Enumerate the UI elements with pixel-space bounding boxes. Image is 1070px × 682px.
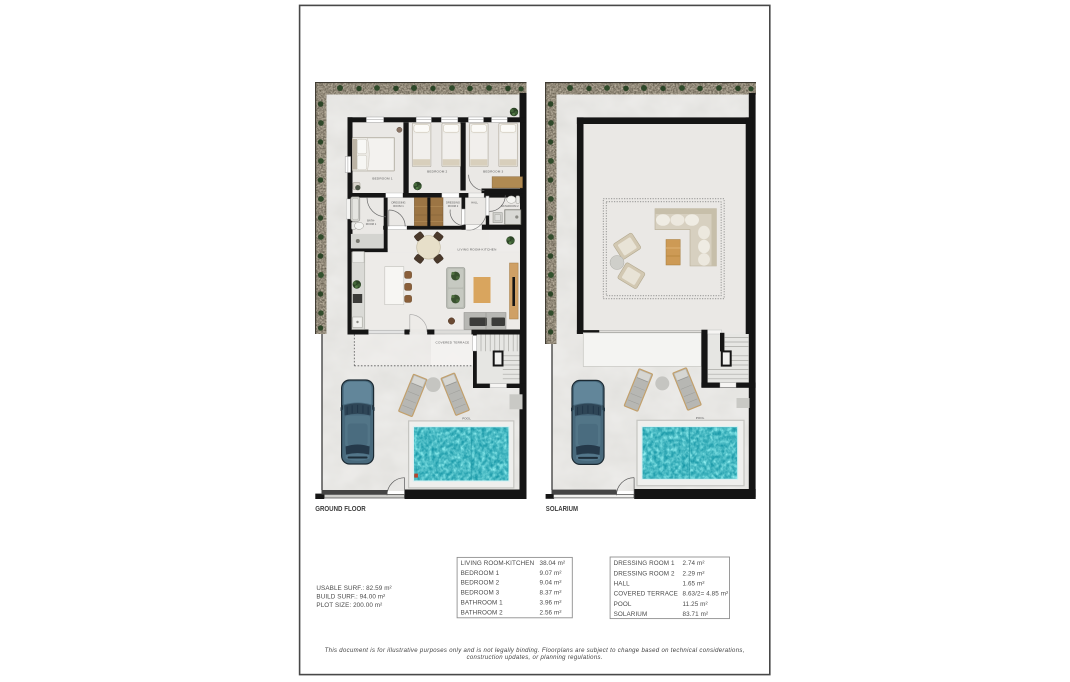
svg-text:38.04 m²: 38.04 m²	[540, 560, 566, 567]
svg-text:BEDROOM 2: BEDROOM 2	[427, 169, 447, 173]
svg-text:2.29 m²: 2.29 m²	[683, 570, 705, 577]
svg-text:DRESSING ROOM 2: DRESSING ROOM 2	[614, 570, 675, 577]
svg-text:construction updates, or plann: construction updates, or planning regula…	[467, 655, 603, 661]
svg-text:PLOT SIZE: 200.00 m²: PLOT SIZE: 200.00 m²	[316, 602, 382, 609]
svg-text:9.04 m²: 9.04 m²	[540, 580, 562, 587]
svg-text:DRESSING: DRESSING	[391, 200, 405, 204]
svg-text:ROOM 2: ROOM 2	[448, 204, 459, 208]
svg-text:BEDROOM 2: BEDROOM 2	[461, 580, 500, 587]
svg-text:DRESSING ROOM 1: DRESSING ROOM 1	[614, 560, 675, 567]
svg-text:3.96 m²: 3.96 m²	[540, 600, 562, 607]
svg-text:8.63/2= 4.85 m²: 8.63/2= 4.85 m²	[683, 591, 729, 598]
svg-text:83.71 m²: 83.71 m²	[683, 611, 709, 618]
svg-text:ROOM 1: ROOM 1	[393, 204, 404, 208]
svg-text:BEDROOM 3: BEDROOM 3	[483, 169, 503, 173]
svg-text:POOL: POOL	[614, 601, 632, 608]
svg-text:BEDROOM 1: BEDROOM 1	[461, 570, 500, 577]
svg-text:GROUND FLOOR: GROUND FLOOR	[315, 505, 366, 513]
svg-text:BATHROOM 2: BATHROOM 2	[461, 609, 504, 616]
svg-text:LIVING ROOM-KITCHEN: LIVING ROOM-KITCHEN	[457, 247, 496, 251]
svg-text:USABLE SURF.: 82.59 m²: USABLE SURF.: 82.59 m²	[316, 585, 391, 592]
svg-text:COVERED TERRACE: COVERED TERRACE	[436, 341, 470, 345]
svg-text:COVERED TERRACE: COVERED TERRACE	[614, 591, 678, 598]
svg-text:2.56 m²: 2.56 m²	[540, 609, 562, 616]
svg-text:This document is for illustrat: This document is for illustrative purpos…	[325, 648, 745, 654]
svg-text:POOL: POOL	[696, 416, 705, 420]
svg-text:DRESSING: DRESSING	[446, 200, 460, 204]
svg-text:2.74 m²: 2.74 m²	[683, 560, 705, 567]
svg-text:BEDROOM 3: BEDROOM 3	[461, 590, 500, 597]
svg-text:1.65 m²: 1.65 m²	[683, 581, 705, 588]
svg-text:SOLARIUM: SOLARIUM	[546, 505, 578, 513]
svg-text:BATHROOM 1: BATHROOM 1	[461, 600, 504, 607]
svg-text:BATHROOM 2: BATHROOM 2	[501, 204, 519, 208]
svg-text:ROOM 1: ROOM 1	[366, 222, 377, 226]
svg-text:LIVING ROOM-KITCHEN: LIVING ROOM-KITCHEN	[461, 560, 535, 567]
svg-text:11.25 m²: 11.25 m²	[683, 601, 708, 608]
svg-text:HALL: HALL	[614, 581, 631, 588]
svg-text:9.07 m²: 9.07 m²	[540, 570, 562, 577]
svg-text:POOL: POOL	[462, 416, 471, 420]
svg-text:BUILD SURF.: 94.00 m²: BUILD SURF.: 94.00 m²	[316, 594, 385, 601]
svg-text:8.37 m²: 8.37 m²	[540, 590, 562, 597]
svg-text:HALL: HALL	[471, 201, 478, 205]
svg-text:BEDROOM 1: BEDROOM 1	[372, 177, 392, 181]
svg-text:SOLARIUM: SOLARIUM	[614, 611, 648, 618]
